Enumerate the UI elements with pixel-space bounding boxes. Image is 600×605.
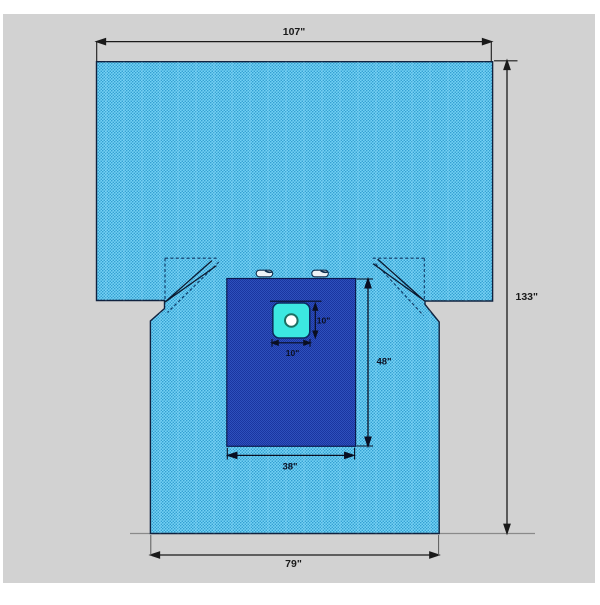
svg-text:133": 133" — [516, 291, 539, 303]
svg-text:107": 107" — [283, 26, 306, 38]
svg-text:79": 79" — [285, 558, 302, 570]
svg-text:10": 10" — [286, 348, 300, 358]
svg-text:48": 48" — [376, 357, 391, 368]
svg-text:10": 10" — [317, 316, 331, 326]
svg-text:38": 38" — [282, 462, 297, 473]
